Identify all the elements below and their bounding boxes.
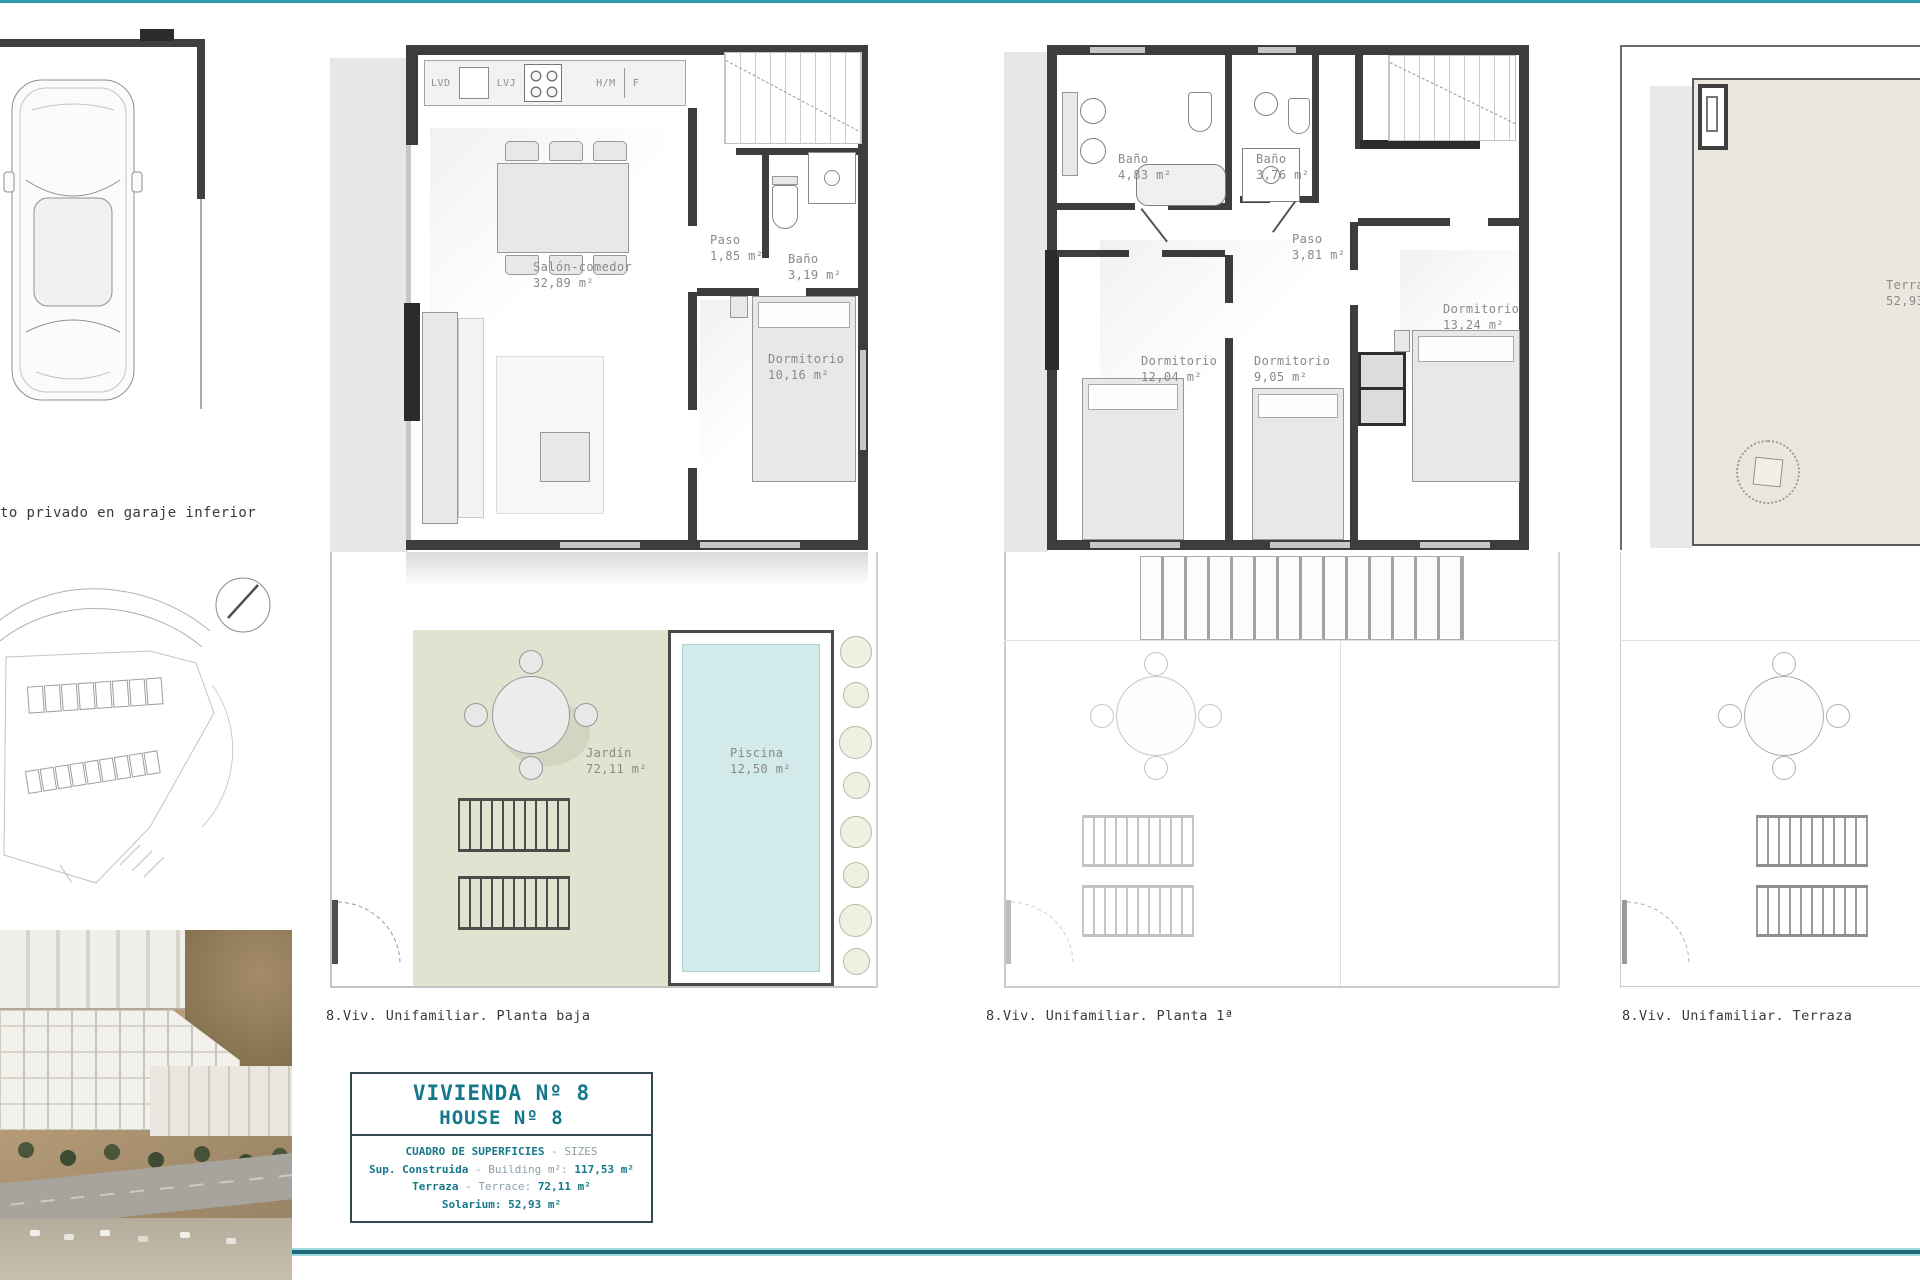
room-label-dormitorio: Dormitorio10,16 m² [768,352,844,383]
wall-segment [1312,45,1319,203]
nightstand [1394,330,1410,352]
window [406,421,411,540]
stairs [724,52,862,144]
pergola-slats [1140,556,1464,640]
appliance-label-lvj: LVJ [497,78,517,89]
garden-chair-ghost [1144,652,1168,676]
washbasin-icon [1254,92,1278,116]
garden-chair-ghost [1718,704,1742,728]
window [1258,47,1296,53]
room-label-salon-comedor: Salón-comedor32,89 m² [533,260,632,291]
window [1420,542,1490,548]
vanity-counter [1062,92,1078,176]
shower-drain [824,170,840,186]
wall-segment [688,108,697,226]
appliance-label-f: F [633,78,640,89]
parked-cars [30,1230,40,1236]
wall-segment [1225,45,1232,210]
shrub [839,904,872,937]
plan-caption-planta-baja: 8.Viv. Unifamiliar. Planta baja [326,1008,590,1024]
chair [593,141,627,161]
wall-segment [1519,45,1529,550]
palm-trees [18,1142,34,1158]
wall-segment [806,288,868,296]
shrub [843,948,870,975]
wall-segment [1488,218,1519,226]
planter-box [1753,457,1784,488]
kitchen-counter: LVD LVJ H/M F [424,60,686,106]
car-top-view [4,80,142,400]
room-label-paso: Paso3,81 m² [1292,232,1345,263]
garden-chair-ghost [1198,704,1222,728]
sofa [422,312,458,524]
garden-chair-ghost [1772,756,1796,780]
toilet-icon [1188,92,1212,132]
sun-lounger [458,876,570,930]
room-label-bano-2: Baño3,76 m² [1256,152,1309,183]
garden-table-ghost [1744,676,1824,756]
top-rule [0,0,1920,3]
wardrobe-shelf [1361,387,1403,390]
washbasin-icon [1080,98,1106,124]
paving-line [1004,640,1560,641]
wall-segment [1045,250,1059,370]
sun-lounger-ghost [1082,815,1194,867]
summary-box-body: CUADRO DE SUPERFICIES - SIZES Sup. Const… [352,1136,651,1221]
toilet-icon [772,185,798,229]
garden-chair [519,756,543,780]
garden-chair [464,703,488,727]
plot-line [1620,45,1920,47]
garden-table-ghost [1116,676,1196,756]
plot-line [1004,986,1560,988]
size-row-terrace: Terraza - Terrace: 72,11 m² [356,1178,647,1196]
shrub [843,862,869,888]
plot-line [876,552,878,988]
building-shadow [406,552,868,586]
chair [549,141,583,161]
wall-segment [688,292,697,410]
garden-chair-ghost [1144,756,1168,780]
paving-line [1620,640,1920,641]
promenade [0,1218,292,1280]
toilet-icon [1288,98,1310,134]
wall-segment [1355,45,1363,149]
counter-divider [624,68,625,98]
hilltop-buildings [0,930,190,1010]
stair-bulkhead-inner [1706,96,1718,132]
garage-plan [0,25,215,425]
stairs [1388,55,1516,141]
nightstand [730,296,748,318]
room-label-piscina: Piscina12,50 m² [730,746,791,777]
washbasin-icon [1080,138,1106,164]
wall-shadow [1004,52,1048,552]
site-plan [0,565,290,905]
wall-segment [697,288,759,296]
plot-line [1620,986,1920,987]
summary-box-titles: VIVIENDA Nº 8 HOUSE Nº 8 [352,1074,651,1136]
stair-bulkhead [1698,84,1728,150]
garden-chair-ghost [1826,704,1850,728]
window [406,145,411,303]
wall-segment [688,468,697,540]
appliance-label-hm: H/M [596,78,616,89]
pool-water [682,644,820,972]
toilet-tank [772,176,798,185]
appliance-label-lvd: LVD [431,78,451,89]
paving-line [1340,640,1341,986]
sofa-seat [458,318,484,518]
sizes-header: CUADRO DE SUPERFICIES - SIZES [356,1143,647,1161]
room-label-bano: Baño3,19 m² [788,252,841,283]
plan-sheet: to privado en garaje inferior [0,0,1920,1280]
aerial-photo [0,930,292,1280]
window [860,350,866,450]
wall-segment [1350,222,1358,270]
room-label-terraza: Terraza52,93 m² [1886,278,1920,309]
pillow [1418,336,1514,362]
sun-lounger-ghost [1082,885,1194,937]
plot-line [1558,552,1560,988]
plan-caption-planta-1: 8.Viv. Unifamiliar. Planta 1ª [986,1008,1233,1024]
glass-door [700,542,800,548]
shrub [840,816,872,848]
window [1090,47,1145,53]
sun-lounger-ghost [1756,815,1868,867]
sink-icon [459,67,489,99]
garden-chair-ghost [1772,652,1796,676]
house-title-es: VIVIENDA Nº 8 [352,1081,651,1105]
glass-door [560,542,640,548]
wall-segment [1057,203,1135,210]
room-label-dormitorio-1: Dormitorio12,04 m² [1141,354,1217,385]
door-swing-ghost [1006,900,1078,970]
wall-segment [1350,305,1358,540]
shrub [839,726,872,759]
wall-segment [406,45,418,145]
plot-line [1620,552,1621,988]
door-swing [332,900,404,970]
sun-lounger-ghost [1756,885,1868,937]
window [1270,542,1350,548]
coffee-table [540,432,590,482]
sun-lounger [458,798,570,852]
wall-segment [404,303,420,421]
wall-shadow [1650,86,1692,548]
pillow [1258,394,1338,418]
plot-line [330,986,878,988]
room-label-bano-1: Baño4,83 m² [1118,152,1171,183]
hob-icon [524,64,562,102]
window [1090,542,1180,548]
wall-segment [1300,196,1319,203]
wall-segment [1360,140,1480,149]
garden-chair [574,703,598,727]
garden-chair [519,650,543,674]
garden-table [492,676,570,754]
house-title-en: HOUSE Nº 8 [352,1107,651,1129]
chair [505,141,539,161]
shrub [843,682,869,708]
size-row-solarium: Solarium: 52,93 m² [356,1196,647,1214]
plot-line [1620,45,1622,550]
plan-caption-terraza: 8.Viv. Unifamiliar. Terraza [1622,1008,1852,1024]
summary-box: VIVIENDA Nº 8 HOUSE Nº 8 CUADRO DE SUPER… [350,1072,653,1223]
wardrobe [1358,352,1406,426]
room-label-dormitorio-3: Dormitorio13,24 m² [1443,302,1519,333]
garden-chair-ghost [1090,704,1114,728]
shrub [840,636,872,668]
room-label-paso: Paso1,85 m² [710,233,763,264]
north-arrow [216,578,270,632]
apartment-block-2 [150,1066,292,1136]
pillow [758,302,850,328]
room-label-jardin: Jardín72,11 m² [586,746,647,777]
wall-shadow [330,58,408,552]
dining-table [497,163,629,253]
wall-segment [1358,218,1450,226]
pillow [1088,384,1178,410]
garage-caption: to privado en garaje inferior [0,505,256,521]
door-swing-ghost [1622,900,1694,970]
size-row-built: Sup. Construida - Building m²: 117,53 m² [356,1161,647,1179]
room-label-dormitorio-2: Dormitorio9,05 m² [1254,354,1330,385]
shrub [843,772,870,799]
